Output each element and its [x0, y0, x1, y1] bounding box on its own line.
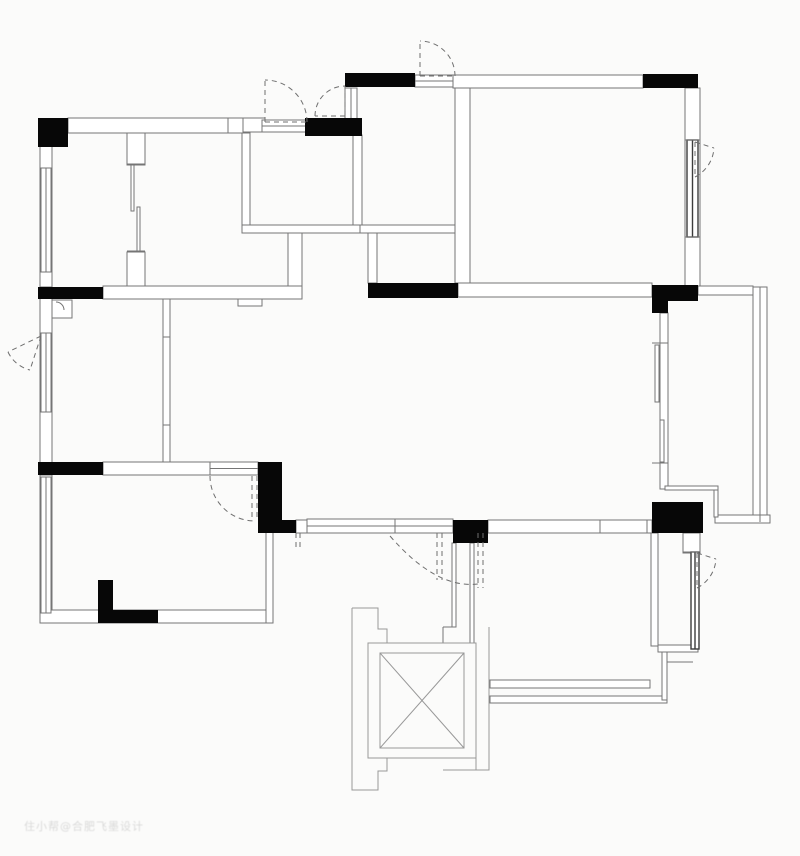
floor-plan-page: 住小帮@合肥飞墨设计 [0, 0, 800, 856]
elevator-shaft [368, 643, 476, 758]
watermark-text: 住小帮@合肥飞墨设计 [24, 818, 144, 834]
wall-segments [40, 75, 770, 703]
floor-plan-drawing [0, 0, 800, 856]
